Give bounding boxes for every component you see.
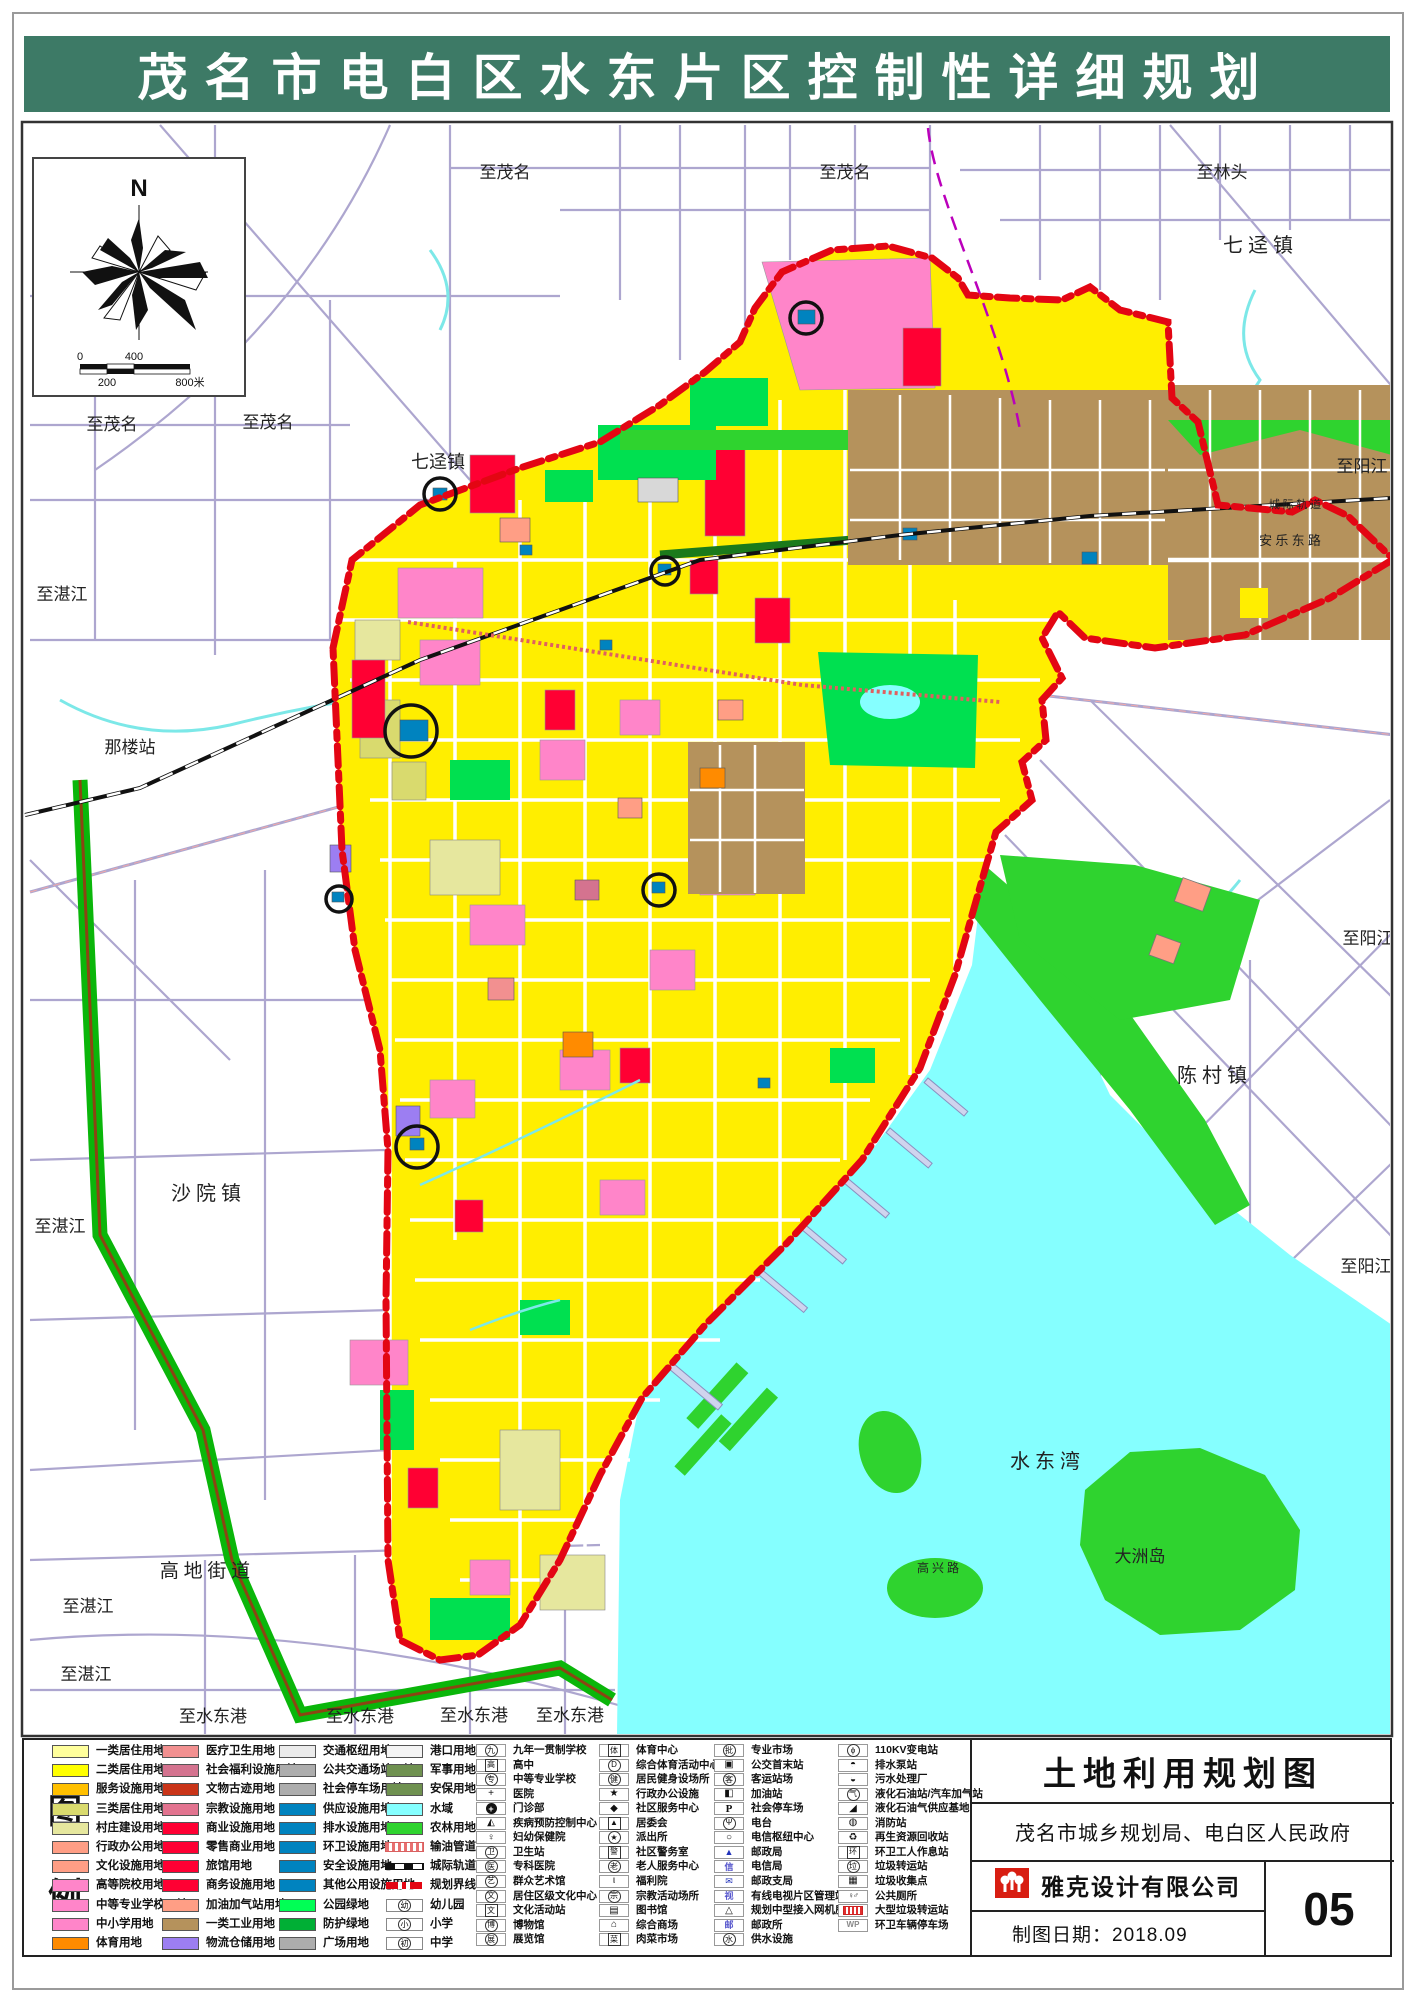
symbol-公交首末站: ▣ [714, 1759, 744, 1772]
symbol-加油站: ◧ [714, 1788, 744, 1801]
landuse-swatch [52, 1764, 89, 1777]
legend-label: 邮政局 [751, 1847, 783, 1858]
symbol-供水设施: 水 [714, 1933, 744, 1946]
symbol-排水泵站: ◓ [838, 1759, 868, 1772]
landuse-swatch [52, 1822, 89, 1835]
landuse-swatch [162, 1937, 199, 1950]
symbol-glyph: ▦ [848, 1876, 857, 1886]
rail-swatch [386, 1864, 423, 1869]
legend-label: 三类居住用地 [96, 1803, 165, 1816]
school-glyph: 初 [398, 1937, 411, 1950]
symbol-glyph: 环 [847, 1846, 860, 1859]
landuse-swatch [162, 1803, 199, 1816]
legend-label: 商业设施用地 [206, 1822, 275, 1835]
landuse-swatch [52, 1745, 89, 1758]
symbol-glyph: 老 [608, 1860, 621, 1873]
landuse-swatch [386, 1745, 423, 1758]
landuse-swatch [279, 1764, 316, 1777]
legend-label: 宗教设施用地 [206, 1803, 275, 1816]
symbol-电信局: 信 [714, 1860, 744, 1873]
school-swatch: 幼 [386, 1899, 423, 1912]
legend-label: 水域 [430, 1803, 453, 1816]
legend-label: 客运站场 [751, 1774, 793, 1785]
symbol-glyph: P [726, 1804, 733, 1814]
place-label-17: 高 地 街 道 [160, 1560, 250, 1582]
landuse-swatch [162, 1879, 199, 1892]
legend-label: 供应设施用地 [323, 1803, 392, 1816]
symbol-glyph: 视 [724, 1891, 733, 1901]
legend-label: 液化石油气供应基地 [875, 1803, 970, 1814]
symbol-glyph: △ [725, 1906, 733, 1916]
legend-label: 环卫车辆停车场 [875, 1920, 949, 1931]
legend-label: 中小学用地 [96, 1918, 154, 1931]
symbol-glyph: 警 [608, 1846, 621, 1859]
legend-label: 液化石油站/汽车加气站 [875, 1789, 983, 1800]
legend-label: 规划中型接入网机房 [751, 1905, 846, 1916]
legend-label: 安全设施用地 [323, 1860, 392, 1873]
symbol-glyph: WP [847, 1920, 860, 1930]
legend-landuse-col-1: 一类居住用地二类居住用地服务设施用地三类居住用地村庄建设用地行政办公用地文化设施… [52, 1740, 160, 1955]
legend-symbol-col-3: 批专业市场▣公交首末站客客运站场◧加油站P社会停车场Ψ电台○电信枢纽中心▲邮政局… [714, 1740, 834, 1955]
landuse-swatch [52, 1783, 89, 1796]
place-label-14: 至阳江 [1341, 1257, 1392, 1276]
symbol-居住区级文化中心: 文 [476, 1890, 506, 1903]
legend-label: 有线电视片区管理站 [751, 1891, 846, 1902]
symbol-glyph: ♻ [849, 1833, 858, 1843]
place-label-1: 至茂名 [820, 163, 871, 182]
legend-label: 环卫工人作息站 [875, 1847, 949, 1858]
symbol-专科医院: 医 [476, 1860, 506, 1873]
legend-label: 体育中心 [636, 1745, 678, 1756]
symbol-glyph: Ψ [723, 1817, 736, 1830]
symbol-glyph: 高 [485, 1759, 498, 1772]
symbol-妇幼保健院: ♀ [476, 1831, 506, 1844]
symbol-客运站场: 客 [714, 1773, 744, 1786]
date-line: 制图日期：2018.09 [1012, 1920, 1188, 1947]
symbol-邮政支局: ✉ [714, 1875, 744, 1888]
title-block: 土地利用规划图 茂名市城乡规划局、电白区人民政府 雅克设计有限公司 [972, 1740, 1394, 1955]
legend-label: 城际轨道 [430, 1860, 476, 1873]
legend-label: 邮政所 [751, 1920, 783, 1931]
legend-label: 宗教活动场所 [636, 1891, 699, 1902]
legend-label: 高中 [513, 1760, 534, 1771]
place-label-16: 大洲岛 [1115, 1547, 1166, 1566]
symbol-有线电视片区管理站: 视 [714, 1890, 744, 1903]
landuse-swatch [279, 1783, 316, 1796]
place-label-3: 七 迳 镇 [1223, 234, 1293, 257]
legend-label: 规划界线 [430, 1879, 476, 1892]
legend-label: 专科医院 [513, 1861, 555, 1872]
legend-label: 供水设施 [751, 1934, 793, 1945]
legend-label: 门诊部 [513, 1803, 545, 1814]
legend-label: 社区警务室 [636, 1847, 689, 1858]
landuse-swatch [162, 1860, 199, 1873]
landuse-swatch [279, 1860, 316, 1873]
legend-panel: 图 例 一类居住用地二类居住用地服务设施用地三类居住用地村庄建设用地行政办公用地… [22, 1738, 1392, 1957]
symbol-glyph: 展 [485, 1933, 498, 1946]
legend-symbol-col-1: 九九年一贯制学校高高中专中等专业学校+医院+门诊部◭疾病预防控制中心♀妇幼保健院… [476, 1740, 594, 1955]
symbol-规划中型接入网机房: △ [714, 1904, 744, 1917]
school-swatch: 初 [386, 1937, 423, 1950]
legend-symbol-col-2: 体体育中心D综合体育活动中心健居民健身设场所★行政办公设施◆社区服务中心▲居委会… [599, 1740, 709, 1955]
road-label-2: 高 兴 路 [917, 1560, 959, 1575]
legend-label: 广场用地 [323, 1937, 369, 1950]
legend-label: 体育用地 [96, 1937, 142, 1950]
legend-label: 博物馆 [513, 1920, 545, 1931]
symbol-九年一贯制学校: 九 [476, 1744, 506, 1757]
symbol-glyph: 专 [485, 1773, 498, 1786]
boundary-swatch [386, 1882, 423, 1889]
landuse-swatch [52, 1937, 89, 1950]
place-label-19: 至湛江 [61, 1665, 112, 1684]
place-label-0: 至茂名 [480, 163, 531, 182]
legend-label: 综合体育活动中心 [636, 1760, 720, 1771]
place-label-9: 至阳江 [1337, 457, 1388, 476]
legend-label: 医院 [513, 1789, 534, 1800]
legend-label: 电信枢纽中心 [751, 1832, 814, 1843]
compass-box: N [33, 158, 245, 396]
symbol-液化石油站/汽车加气站: 气 [838, 1788, 868, 1801]
place-label-13: 至湛江 [35, 1217, 86, 1236]
symbol-glyph: ◍ [849, 1818, 858, 1828]
place-label-11: 陈 村 镇 [1177, 1064, 1247, 1087]
symbol-glyph: D [608, 1759, 621, 1772]
legend-label: 加油站 [751, 1789, 783, 1800]
landuse-swatch [279, 1879, 316, 1892]
landuse-swatch [162, 1745, 199, 1758]
legend-label: 医疗卫生用地 [206, 1745, 275, 1758]
symbol-卫生站: 卫 [476, 1846, 506, 1859]
symbol-glyph: ϕ [847, 1744, 860, 1757]
symbol-社区警务室: 警 [599, 1846, 629, 1859]
legend-label: 交通枢纽用地 [323, 1745, 392, 1758]
symbol-门诊部: + [476, 1802, 506, 1815]
landuse-swatch [279, 1937, 316, 1950]
legend-landuse-col-4: 港口用地军事用地安保用地水域农林用地输油管道城际轨道规划界线幼幼儿园小小学初中学 [386, 1740, 472, 1955]
symbol-再生资源回收站: ♻ [838, 1831, 868, 1844]
legend-label: 派出所 [636, 1832, 668, 1843]
school-glyph: 小 [398, 1918, 411, 1931]
road-label-1: 城 际 轨 道 [1269, 497, 1321, 511]
symbol-glyph: + [486, 1803, 497, 1814]
symbol-疾病预防控制中心: ◭ [476, 1817, 506, 1830]
symbol-福利院: ι [599, 1875, 629, 1888]
symbol-glyph: ★ [608, 1831, 621, 1844]
legend-label: 高等院校用地 [96, 1879, 165, 1892]
legend-symbol-col-4: ϕ110KV变电站◓排水泵站◒污水处理厂气液化石油站/汽车加气站◢液化石油气供应… [838, 1740, 966, 1955]
symbol-glyph: ⌂ [611, 1920, 617, 1930]
legend-label: 肉菜市场 [636, 1934, 678, 1945]
symbol-glyph: 气 [847, 1788, 860, 1801]
symbol-glyph: ◧ [724, 1789, 733, 1799]
symbol-glyph: ♀ [487, 1833, 495, 1843]
landuse-swatch [52, 1841, 89, 1854]
legend-label: 图书馆 [636, 1905, 668, 1916]
place-label-10: 至阳江 [1343, 929, 1394, 948]
symbol-glyph: 体 [608, 1744, 621, 1757]
symbol-中等专业学校: 专 [476, 1773, 506, 1786]
place-label-5: 至茂名 [243, 413, 294, 432]
symbol-glyph: 文 [485, 1904, 498, 1917]
place-label-7: 至湛江 [37, 585, 88, 604]
place-label-2: 至林头 [1197, 163, 1248, 182]
legend-label: 中等专业学校 [513, 1774, 576, 1785]
legend-label: 社会停车场 [751, 1803, 804, 1814]
symbol-glyph: ▲ [608, 1817, 621, 1830]
symbol-社会停车场: P [714, 1802, 744, 1815]
symbol-派出所: ★ [599, 1831, 629, 1844]
symbol-glyph: 批 [723, 1744, 736, 1757]
legend-label: 加油加气站用地 [206, 1899, 287, 1912]
place-label-22: 至水东港 [440, 1706, 508, 1725]
symbol-体育中心: 体 [599, 1744, 629, 1757]
symbol-glyph: 邮 [724, 1920, 733, 1930]
company-logo [995, 1868, 1029, 1903]
symbol-glyph: 博 [485, 1919, 498, 1932]
symbol-环卫车辆停车场: WP [838, 1919, 868, 1932]
legend-label: 排水设施用地 [323, 1822, 392, 1835]
landuse-swatch [162, 1918, 199, 1931]
sheet-title: 土地利用规划图 [1043, 1747, 1323, 1795]
legend-label: 行政办公用地 [96, 1841, 165, 1854]
landuse-swatch [386, 1764, 423, 1777]
legend-label: 群众艺术馆 [513, 1876, 566, 1887]
symbol-液化石油气供应基地: ◢ [838, 1802, 868, 1815]
legend-label: 二类居住用地 [96, 1764, 165, 1777]
school-glyph: 幼 [398, 1899, 411, 1912]
symbol-博物馆: 博 [476, 1919, 506, 1932]
company-name: 雅克设计有限公司 [1041, 1868, 1241, 1902]
landuse-swatch [386, 1783, 423, 1796]
symbol-公共厕所: ♀♂ [838, 1890, 868, 1903]
legend-label: 老人服务中心 [636, 1861, 699, 1872]
legend-label: 居委会 [636, 1818, 668, 1829]
legend-label: 垃圾收集点 [875, 1876, 928, 1887]
legend-landuse-col-2: 医疗卫生用地社会福利设施用地文物古迹用地宗教设施用地商业设施用地零售商业用地旅馆… [162, 1740, 276, 1955]
symbol-综合商场: ⌂ [599, 1919, 629, 1932]
legend-label: 电台 [751, 1818, 772, 1829]
legend-label: 展览馆 [513, 1934, 545, 1945]
legend-label: 公园绿地 [323, 1899, 369, 1912]
place-label-4: 至茂名 [87, 415, 138, 434]
symbol-垃圾转运站: 垃 [838, 1860, 868, 1873]
sheet-number: 05 [1303, 1882, 1354, 1936]
landuse-swatch [52, 1860, 89, 1873]
symbol-glyph: 健 [608, 1773, 621, 1786]
landuse-swatch [162, 1783, 199, 1796]
symbol-居民健身设场所: 健 [599, 1773, 629, 1786]
symbol-glyph: 艺 [485, 1875, 498, 1888]
symbol-高中: 高 [476, 1759, 506, 1772]
legend-label: 安保用地 [430, 1783, 476, 1796]
symbol-glyph: 九 [485, 1744, 498, 1757]
place-label-18: 至湛江 [63, 1597, 114, 1616]
symbol-glyph: 卫 [485, 1846, 498, 1859]
legend-label: 中学 [430, 1937, 453, 1950]
symbol-glyph: ◢ [849, 1804, 857, 1814]
symbol-glyph: 垃 [847, 1860, 860, 1873]
symbol-居委会: ▲ [599, 1817, 629, 1830]
legend-label: 零售商业用地 [206, 1841, 275, 1854]
legend-label: 公共厕所 [875, 1891, 917, 1902]
legend-label: 幼儿园 [430, 1899, 465, 1912]
legend-label: 福利院 [636, 1876, 668, 1887]
landuse-swatch [162, 1841, 199, 1854]
legend-label: 村庄建设用地 [96, 1822, 165, 1835]
symbol-glyph: ◒ [850, 1775, 856, 1785]
place-label-12: 沙 院 镇 [171, 1182, 241, 1205]
symbol-glyph: 菜 [608, 1933, 621, 1946]
legend-label: 垃圾转运站 [875, 1861, 928, 1872]
symbol-glyph: ✉ [725, 1876, 733, 1886]
svg-text:200: 200 [98, 377, 116, 389]
place-label-20: 至水东港 [179, 1707, 247, 1726]
symbol-环卫工人作息站: 环 [838, 1846, 868, 1859]
place-label-21: 至水东港 [326, 1707, 394, 1726]
legend-label: 港口用地 [430, 1745, 476, 1758]
symbol-glyph: 信 [724, 1862, 733, 1872]
legend-label: 消防站 [875, 1818, 907, 1829]
symbol-glyph: ι [613, 1876, 615, 1886]
school-swatch: 小 [386, 1918, 423, 1931]
legend-label: 排水泵站 [875, 1760, 917, 1771]
symbol-电台: Ψ [714, 1817, 744, 1830]
legend-label: 妇幼保健院 [513, 1832, 566, 1843]
legend-label: 疾病预防控制中心 [513, 1818, 597, 1829]
symbol-glyph: ◭ [487, 1818, 495, 1828]
legend-label: 文物古迹用地 [206, 1783, 275, 1796]
legend-label: 输油管道 [430, 1841, 476, 1854]
symbol-glyph: ◆ [610, 1804, 618, 1814]
landuse-swatch [162, 1899, 199, 1912]
symbol-污水处理厂: ◒ [838, 1773, 868, 1786]
legend-label: 环卫设施用地 [323, 1841, 392, 1854]
symbol-消防站: ◍ [838, 1817, 868, 1830]
landuse-swatch [162, 1822, 199, 1835]
park-lake [860, 685, 920, 719]
north-label: N [130, 175, 147, 202]
landuse-swatch [279, 1803, 316, 1816]
landuse-swatch [386, 1803, 423, 1816]
symbol-glyph [843, 1906, 863, 1915]
svg-text:0: 0 [77, 351, 83, 363]
legend-label: 文化活动站 [513, 1905, 566, 1916]
legend-label: 综合商场 [636, 1920, 678, 1931]
symbol-110KV变电站: ϕ [838, 1744, 868, 1757]
legend-label: 居民健身设场所 [636, 1774, 710, 1785]
symbol-群众艺术馆: 艺 [476, 1875, 506, 1888]
landuse-swatch [52, 1879, 89, 1892]
legend-label: 电信局 [751, 1861, 783, 1872]
symbol-综合体育活动中心: D [599, 1759, 629, 1772]
legend-label: 行政办公设施 [636, 1789, 699, 1800]
symbol-大型垃圾转运站 [838, 1904, 868, 1917]
symbol-老人服务中心: 老 [599, 1860, 629, 1873]
legend-label: 公交首末站 [751, 1760, 804, 1771]
symbol-glyph: ○ [726, 1833, 732, 1843]
symbol-glyph: 医 [485, 1860, 498, 1873]
legend-label: 社区服务中心 [636, 1803, 699, 1814]
symbol-glyph: ◓ [850, 1760, 856, 1770]
landuse-swatch [279, 1841, 316, 1854]
legend-landuse-col-3: 交通枢纽用地公共交通场站用地社会停车场用地供应设施用地排水设施用地环卫设施用地安… [279, 1740, 383, 1955]
landuse-swatch [52, 1803, 89, 1816]
symbol-glyph: ▤ [609, 1906, 618, 1916]
symbol-电信枢纽中心: ○ [714, 1831, 744, 1844]
symbol-glyph: 客 [723, 1773, 736, 1786]
legend-label: 再生资源回收站 [875, 1832, 949, 1843]
landuse-swatch [279, 1918, 316, 1931]
legend-label: 小学 [430, 1918, 453, 1931]
symbol-展览馆: 展 [476, 1933, 506, 1946]
symbol-glyph: 水 [723, 1933, 736, 1946]
landuse-swatch [52, 1918, 89, 1931]
landuse-swatch [279, 1899, 316, 1912]
symbol-glyph: ▲ [725, 1847, 734, 1857]
landuse-swatch [386, 1822, 423, 1835]
place-label-8: 那楼站 [105, 738, 156, 757]
legend-label: 九年一贯制学校 [513, 1745, 587, 1756]
legend-label: 邮政支局 [751, 1876, 793, 1887]
legend-label: 服务设施用地 [96, 1783, 165, 1796]
symbol-专业市场: 批 [714, 1744, 744, 1757]
symbol-glyph: 宗 [608, 1890, 621, 1903]
legend-label: 商务设施用地 [206, 1879, 275, 1892]
legend-label: 旅馆用地 [206, 1860, 252, 1873]
legend-label: 专业市场 [751, 1745, 793, 1756]
plan-sheet: 茂名市电白区水东片区控制性详细规划 [0, 0, 1414, 2000]
legend-label: 一类工业用地 [206, 1918, 275, 1931]
symbol-行政办公设施: ★ [599, 1788, 629, 1801]
place-label-23: 至水东港 [536, 1706, 604, 1725]
landuse-swatch [162, 1764, 199, 1777]
legend-label: 污水处理厂 [875, 1774, 928, 1785]
symbol-文化活动站: 文 [476, 1904, 506, 1917]
authority-name: 茂名市城乡规划局、电白区人民政府 [1015, 1817, 1351, 1846]
svg-text:400: 400 [125, 351, 143, 363]
landuse-swatch [279, 1745, 316, 1758]
legend-label: 军事用地 [430, 1764, 476, 1777]
place-label-15: 水 东 湾 [1010, 1450, 1080, 1473]
symbol-医院: + [476, 1788, 506, 1801]
legend-label: 防护绿地 [323, 1918, 369, 1931]
place-label-6: 七迳镇 [411, 452, 465, 472]
legend-label: 居住区级文化中心 [513, 1891, 597, 1902]
symbol-社区服务中心: ◆ [599, 1802, 629, 1815]
legend-label: 110KV变电站 [875, 1745, 938, 1756]
symbol-glyph: ♀♂ [848, 1891, 858, 1901]
symbol-glyph: ▣ [724, 1760, 733, 1770]
symbol-邮政所: 邮 [714, 1919, 744, 1932]
symbol-glyph: ★ [610, 1789, 619, 1799]
symbol-宗教活动场所: 宗 [599, 1890, 629, 1903]
legend-label: 大型垃圾转运站 [875, 1905, 949, 1916]
svg-text:800米: 800米 [175, 376, 204, 389]
land-use-map[interactable]: 至茂名至茂名至林头七 迳 镇至茂名至茂名七迳镇至湛江那楼站至阳江至阳江陈 村 镇… [0, 0, 1414, 2000]
legend-label: 一类居住用地 [96, 1745, 165, 1758]
symbol-图书馆: ▤ [599, 1904, 629, 1917]
symbol-肉菜市场: 菜 [599, 1933, 629, 1946]
pipeline-swatch [386, 1843, 423, 1851]
landuse-swatch [279, 1822, 316, 1835]
road-label-0: 安 乐 东 路 [1259, 533, 1321, 548]
symbol-glyph: + [488, 1789, 494, 1799]
symbol-glyph: 文 [485, 1890, 498, 1903]
legend-label: 物流仓储用地 [206, 1937, 275, 1950]
legend-label: 文化设施用地 [96, 1860, 165, 1873]
symbol-垃圾收集点: ▦ [838, 1875, 868, 1888]
legend-label: 农林用地 [430, 1822, 476, 1835]
